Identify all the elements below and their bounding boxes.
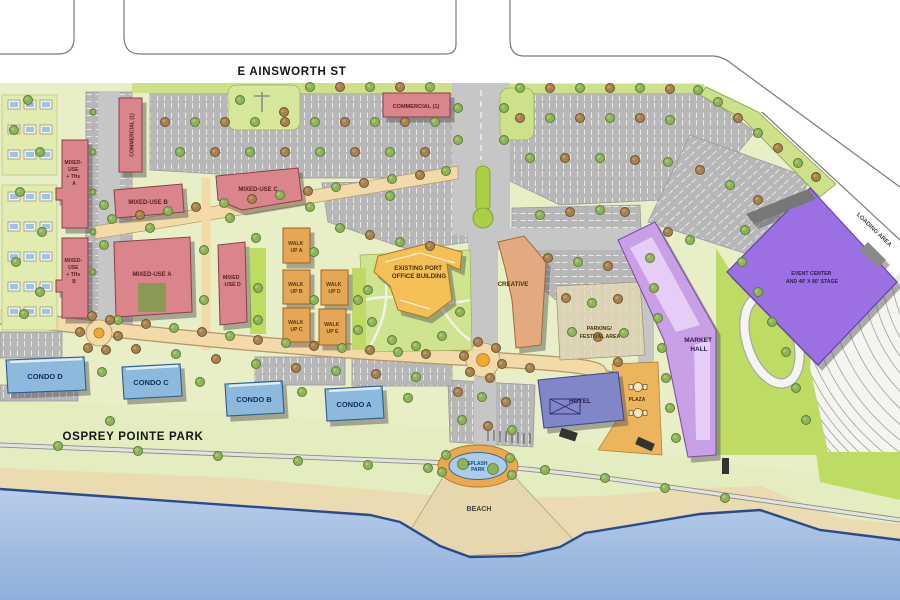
label-condo-a: CONDO A [336, 400, 372, 409]
label-mixed-use-a: MIXED-USE A [132, 272, 172, 278]
label-walk-up-d: WALK UP D [326, 282, 343, 295]
label-condo-c: CONDO C [133, 378, 169, 387]
label-osprey-pointe-park: OSPREY POINTE PARK [62, 431, 203, 443]
label-creative: CREATIVE [498, 281, 529, 288]
label-walk-up-a: WALK UP A [288, 241, 305, 254]
label-e-ainsworth-st: E AINSWORTH ST [238, 66, 347, 78]
label-port-office: EXISTING PORT OFFICE BUILDING [392, 265, 446, 280]
label-walk-up-b: WALK UP B [288, 282, 305, 295]
market-hall-roof-south [694, 340, 710, 440]
label-beach: BEACH [467, 506, 492, 513]
site-plan-map: E AINSWORTH ST OSPREY POINTE PARK BEACH … [0, 0, 900, 600]
label-condo-d: CONDO D [27, 372, 63, 381]
label-commercial-north: COMMERCIAL (1) [393, 104, 440, 110]
label-walk-up-c: WALK UP C [288, 320, 305, 333]
label-hotel: HOTEL [569, 398, 591, 405]
boulevard-median [473, 166, 493, 228]
label-walk-up-e: WALK UP E [324, 322, 341, 335]
label-commercial-west: COMMERCIAL (1) [130, 113, 136, 157]
label-mixed-use-b: MIXED-USE B [128, 200, 168, 206]
mixed-use-a-courtyard [138, 283, 166, 312]
site-plan-page: E AINSWORTH ST OSPREY POINTE PARK BEACH … [0, 0, 900, 600]
label-mixed-use-c: MIXED-USE C [238, 187, 278, 193]
label-mixed-use-d: MIXED -USE D [223, 275, 241, 288]
festival-area [556, 282, 645, 360]
label-condo-b: CONDO B [236, 395, 272, 404]
label-plaza: PLAZA [629, 397, 646, 403]
